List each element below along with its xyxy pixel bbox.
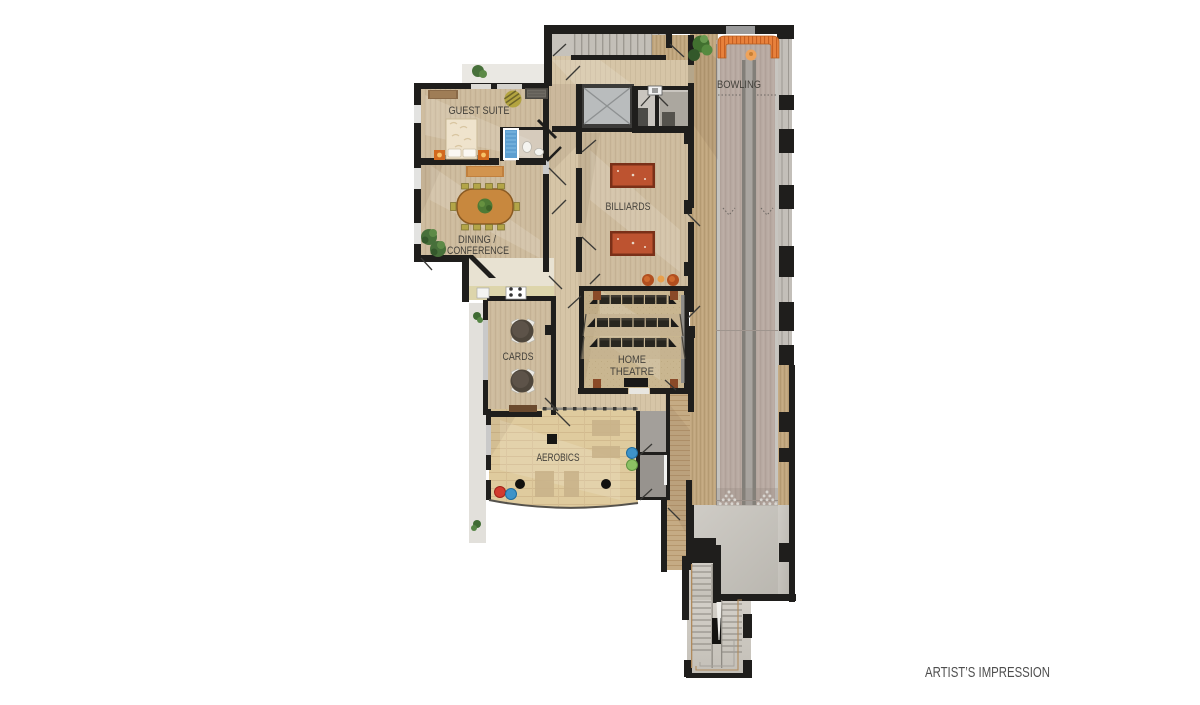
svg-text:THEATRE: THEATRE [610, 366, 654, 378]
svg-text:ARTIST’S IMPRESSION: ARTIST’S IMPRESSION [925, 664, 1050, 681]
svg-text:GUEST SUITE: GUEST SUITE [449, 105, 510, 117]
svg-text:AEROBICS: AEROBICS [537, 452, 580, 464]
svg-text:BILLIARDS: BILLIARDS [606, 201, 651, 213]
svg-text:CONFERENCE: CONFERENCE [447, 245, 509, 257]
svg-text:CARDS: CARDS [503, 351, 534, 363]
svg-text:BOWLING: BOWLING [717, 79, 761, 91]
svg-text:HOME: HOME [618, 354, 646, 366]
